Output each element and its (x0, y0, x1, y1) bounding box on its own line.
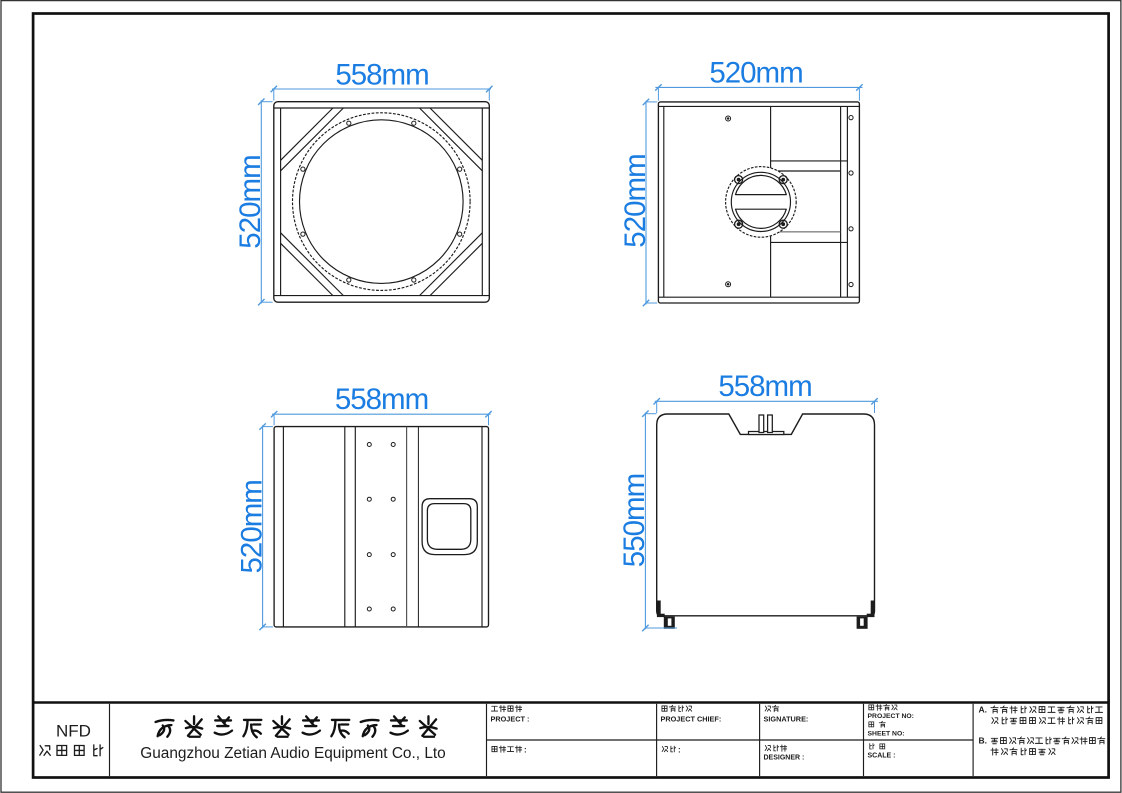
svg-text:558mm: 558mm (335, 58, 428, 91)
svg-text:Guangzhou Zetian Audio Equipme: Guangzhou Zetian Audio Equipment Co., Lt… (140, 745, 445, 762)
svg-text:558mm: 558mm (335, 383, 428, 416)
svg-text:SIGNATURE:: SIGNATURE: (764, 715, 809, 724)
svg-text:520mm: 520mm (619, 154, 652, 247)
svg-text:B.: B. (979, 736, 988, 746)
svg-text:558mm: 558mm (718, 370, 811, 403)
svg-text:SHEET NO:: SHEET NO: (868, 731, 905, 738)
svg-text:PROJECT CHIEF:: PROJECT CHIEF: (661, 715, 722, 724)
svg-text:520mm: 520mm (709, 57, 802, 90)
svg-text:520mm: 520mm (235, 480, 268, 573)
svg-text::: : (678, 746, 681, 755)
svg-text:PROJECT :: PROJECT : (491, 715, 530, 724)
svg-text:PROJECT NO:: PROJECT NO: (868, 713, 914, 720)
svg-text:SCALE :: SCALE : (868, 753, 896, 760)
svg-text:NFD: NFD (56, 722, 91, 741)
svg-text:520mm: 520mm (234, 155, 267, 248)
svg-text:DESIGNER :: DESIGNER : (764, 755, 805, 762)
svg-text::: : (524, 746, 527, 755)
svg-text:A.: A. (979, 705, 988, 715)
svg-text:550mm: 550mm (618, 474, 651, 567)
